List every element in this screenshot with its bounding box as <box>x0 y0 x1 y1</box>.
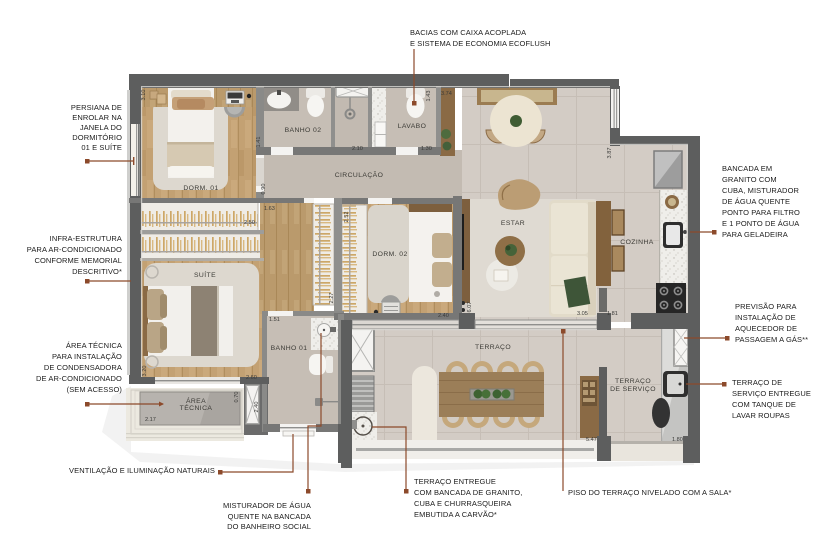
svg-text:0.70: 0.70 <box>234 392 240 403</box>
svg-text:1.30: 1.30 <box>421 146 432 152</box>
svg-text:COZINHA: COZINHA <box>620 239 653 246</box>
svg-text:BANHO 02: BANHO 02 <box>285 127 322 134</box>
svg-text:2.60: 2.60 <box>246 375 257 381</box>
svg-text:2.17: 2.17 <box>145 417 156 423</box>
svg-text:2.52: 2.52 <box>344 212 350 223</box>
svg-text:2.40: 2.40 <box>254 402 260 413</box>
svg-text:3.10: 3.10 <box>141 90 147 101</box>
svg-text:1.41: 1.41 <box>256 137 262 148</box>
svg-text:PISO DO TERRAÇO NIVELADO COM A: PISO DO TERRAÇO NIVELADO COM A SALA* <box>568 488 732 497</box>
svg-text:TERRAÇO: TERRAÇO <box>475 344 511 351</box>
svg-text:SUÍTE: SUÍTE <box>194 270 216 279</box>
svg-text:TÉCNICA: TÉCNICA <box>180 403 213 412</box>
svg-text:CIRCULAÇÃO: CIRCULAÇÃO <box>335 170 384 179</box>
svg-text:6.07: 6.07 <box>467 302 473 313</box>
svg-text:BANHO 01: BANHO 01 <box>271 345 308 352</box>
svg-text:1.81: 1.81 <box>607 311 618 317</box>
svg-text:ESTAR: ESTAR <box>501 220 525 227</box>
svg-text:2.50: 2.50 <box>244 220 255 226</box>
svg-text:ÁREA: ÁREA <box>186 396 206 405</box>
svg-text:1.63: 1.63 <box>264 206 275 212</box>
svg-text:3.74: 3.74 <box>441 91 452 97</box>
svg-text:3.05: 3.05 <box>577 311 588 317</box>
svg-text:1.43: 1.43 <box>426 91 432 102</box>
svg-text:DE SERVIÇO: DE SERVIÇO <box>610 386 656 393</box>
svg-text:LAVABO: LAVABO <box>398 123 427 130</box>
svg-text:2.40: 2.40 <box>438 313 449 319</box>
svg-text:5.47: 5.47 <box>586 437 597 443</box>
svg-text:3.87: 3.87 <box>607 148 613 159</box>
svg-text:MISTURADOR DE ÁGUAQUENTE NA BA: MISTURADOR DE ÁGUAQUENTE NA BANCADADO BA… <box>223 501 311 531</box>
svg-text:0.90: 0.90 <box>261 184 267 195</box>
svg-text:3.20: 3.20 <box>142 366 148 377</box>
svg-text:1.80: 1.80 <box>672 437 683 443</box>
svg-text:DORM. 02: DORM. 02 <box>372 251 407 258</box>
svg-text:2.27: 2.27 <box>329 293 335 304</box>
svg-text:TERRAÇO: TERRAÇO <box>615 378 651 385</box>
svg-text:2.10: 2.10 <box>352 146 363 152</box>
svg-text:VENTILAÇÃO E ILUMINAÇÃO NATURA: VENTILAÇÃO E ILUMINAÇÃO NATURAIS <box>69 466 215 475</box>
svg-text:DORM. 01: DORM. 01 <box>183 185 218 192</box>
svg-text:1.51: 1.51 <box>269 317 280 323</box>
